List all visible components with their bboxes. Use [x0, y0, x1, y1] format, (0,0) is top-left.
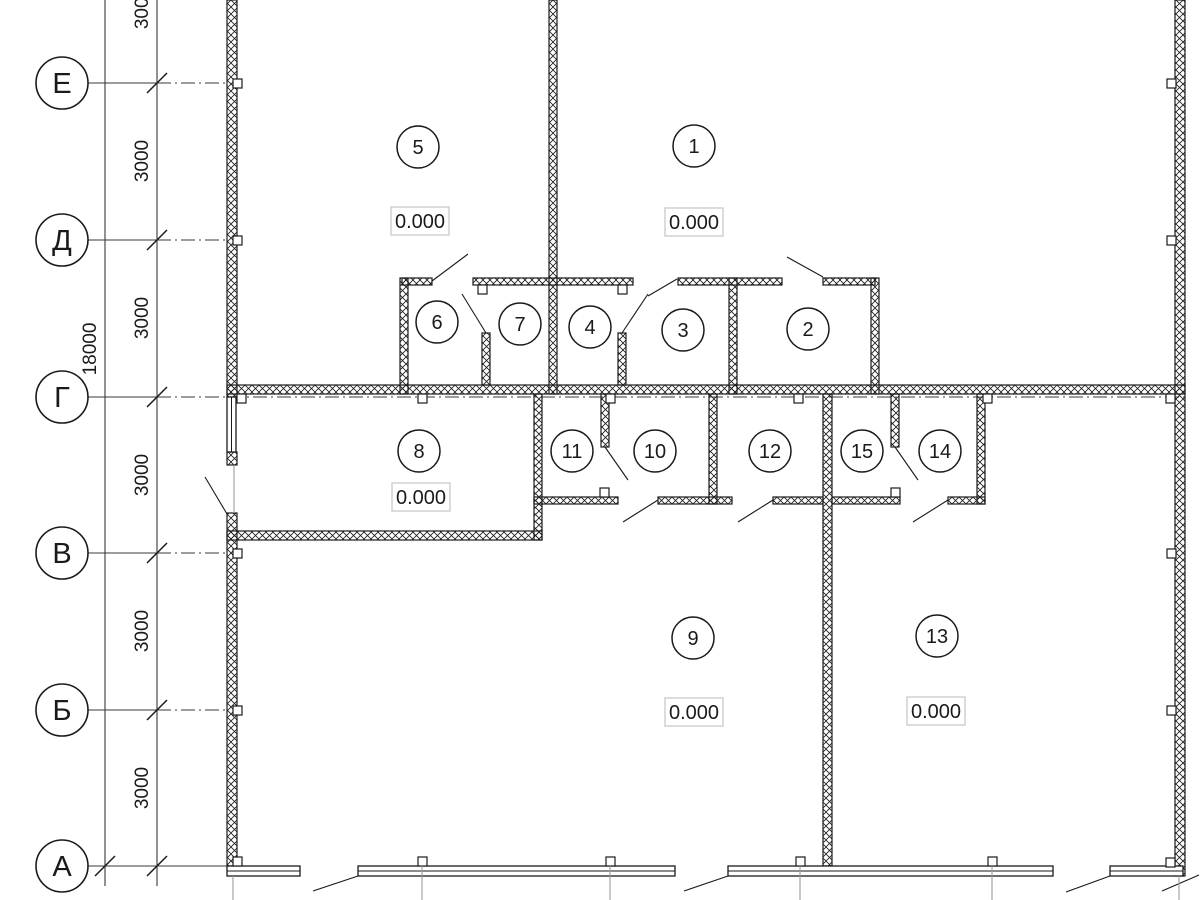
wall-segment: [773, 497, 823, 504]
bay-dimension-label: 3000: [132, 0, 153, 29]
wall-segment: [871, 278, 879, 394]
grid-mark: [233, 236, 242, 245]
room-number: 9: [687, 628, 698, 650]
room-number: 14: [929, 441, 951, 463]
room-number: 4: [584, 317, 595, 339]
wall-segment: [948, 497, 985, 504]
grid-mark: [1167, 236, 1176, 245]
room-number: 1: [688, 136, 699, 158]
wall-segment: [534, 394, 542, 540]
dimension-lines: [95, 0, 167, 886]
wall-segment: [832, 497, 900, 504]
room-number: 12: [759, 441, 781, 463]
door-swing: [605, 447, 628, 480]
floor-plan-canvas: 3000 3000 3000 3000 3000 3000 18000 Е Д …: [0, 0, 1200, 900]
elevation-value: 0.000: [395, 211, 445, 233]
pilaster-mark: [237, 394, 246, 403]
wall-segment: [823, 394, 832, 866]
room-number: 2: [802, 319, 813, 341]
grid-centerlines: [88, 83, 1185, 866]
wall-segment: [658, 497, 732, 504]
axis-label-a: А: [52, 851, 72, 883]
door-swing: [1162, 875, 1199, 891]
dimension-labels: 3000 3000 3000 3000 3000 3000 18000: [80, 0, 153, 809]
column-mark: [606, 857, 615, 866]
elevation-value: 0.000: [669, 702, 719, 724]
axis-label-d: Д: [52, 225, 72, 257]
wall-segment: [400, 278, 408, 394]
room-number: 8: [413, 441, 424, 463]
wall-segment: [1175, 0, 1185, 876]
grid-mark: [233, 549, 242, 558]
floor-plan-drawing: 3000 3000 3000 3000 3000 3000 18000 Е Д …: [0, 0, 1200, 900]
bay-dimension-label: 3000: [132, 610, 153, 652]
elevation-value: 0.000: [669, 212, 719, 234]
door-swing: [622, 294, 648, 333]
room-number: 15: [851, 441, 873, 463]
door-jamb: [600, 488, 609, 497]
grid-mark: [233, 857, 242, 866]
door-swing: [684, 876, 728, 891]
column-mark: [796, 857, 805, 866]
door-jamb: [891, 488, 900, 497]
room-number: 13: [926, 626, 948, 648]
total-dimension-label: 18000: [80, 323, 101, 376]
axis-label-g: Г: [54, 382, 70, 414]
pilaster-mark: [794, 394, 803, 403]
axis-label-b: Б: [52, 695, 71, 727]
room-number: 7: [514, 314, 525, 336]
door-swing: [313, 876, 358, 891]
door-swings: [205, 254, 1199, 892]
grid-mark: [1167, 706, 1176, 715]
wall-segment: [729, 278, 737, 394]
grid-mark: [1166, 858, 1175, 867]
wall-segment: [227, 0, 237, 397]
door-jamb: [478, 285, 487, 294]
elevation-value: 0.000: [396, 487, 446, 509]
wall-segment: [227, 531, 542, 540]
grid-mark: [1167, 79, 1176, 88]
door-swing: [895, 447, 918, 480]
wall-segment: [227, 385, 1185, 394]
column-mark: [988, 857, 997, 866]
elevation-value: 0.000: [911, 701, 961, 723]
room-number: 5: [412, 137, 423, 159]
door-jamb: [618, 285, 627, 294]
wall-segment: [618, 333, 626, 385]
bay-dimension-label: 3000: [132, 297, 153, 339]
wall-segment: [977, 394, 985, 504]
wall-segment: [534, 497, 618, 504]
wall-segment: [709, 394, 717, 504]
wall-segment: [549, 0, 557, 394]
wall-grid-marks: [233, 79, 1176, 867]
room-number: 11: [562, 441, 583, 463]
grid-axis-bubbles: Е Д Г В Б А: [36, 57, 88, 892]
pilaster-mark: [983, 394, 992, 403]
room-number: 10: [644, 441, 666, 463]
wall-segment: [473, 278, 633, 285]
wall-segment: [482, 333, 490, 385]
grid-mark: [233, 706, 242, 715]
door-swing: [1066, 876, 1110, 892]
door-swing: [913, 500, 948, 522]
bay-dimension-label: 3000: [132, 454, 153, 496]
wall-segment: [227, 452, 237, 465]
bay-dimension-label: 3000: [132, 767, 153, 809]
grid-mark: [1167, 549, 1176, 558]
room-number: 3: [677, 320, 688, 342]
room-number: 6: [431, 312, 442, 334]
grid-mark: [233, 79, 242, 88]
wall-segment: [823, 278, 875, 285]
door-swing: [205, 477, 227, 514]
pilaster-mark: [418, 394, 427, 403]
door-swing: [738, 500, 773, 522]
door-swing: [787, 257, 823, 277]
bottom-wall-band: [227, 857, 1183, 876]
axis-label-v: В: [52, 538, 71, 570]
axis-label-e: Е: [52, 68, 71, 100]
door-swing: [432, 254, 468, 281]
wall-segment: [891, 394, 899, 447]
door-swing: [648, 279, 677, 296]
column-mark: [418, 857, 427, 866]
bay-dimension-label: 3000: [132, 140, 153, 182]
wall-segment: [227, 513, 237, 866]
door-swing: [462, 294, 486, 333]
pilaster-mark: [606, 394, 615, 403]
door-swing: [623, 500, 658, 522]
pilaster-mark: [1166, 394, 1175, 403]
